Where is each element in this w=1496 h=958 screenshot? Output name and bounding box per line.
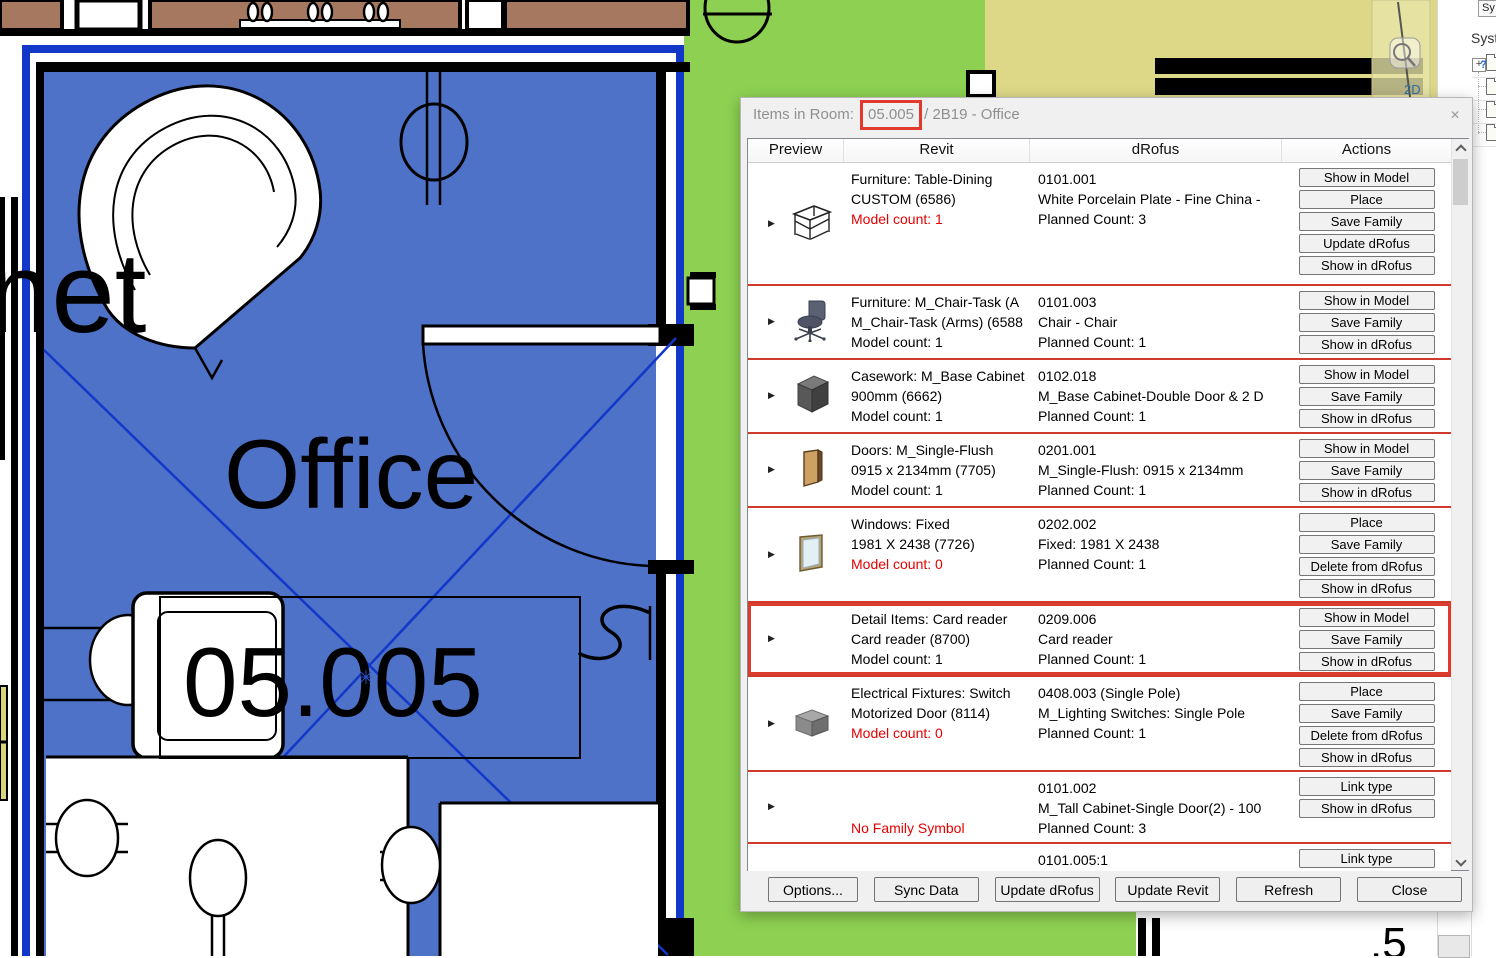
show-in-drofus-button[interactable]: Show in dRofus <box>1299 579 1435 598</box>
dialog-footer: Options... Sync Data Update dRofus Updat… <box>741 877 1472 902</box>
save-family-button[interactable]: Save Family <box>1299 387 1435 406</box>
panel-bottom-button[interactable] <box>1438 935 1470 958</box>
drofus-cell: 0101.003Chair - ChairPlanned Count: 1 <box>1030 286 1282 358</box>
revit-text: Detail Items: Card reader <box>851 609 1030 629</box>
revit-workspace: { "plan": { "room_name": "Office", "room… <box>0 0 1496 956</box>
show-in-model-button[interactable]: Show in Model <box>1299 365 1435 384</box>
sync-data-button[interactable]: Sync Data <box>874 877 979 902</box>
drofus-cell: 0201.001M_Single-Flush: 0915 x 2134mmPla… <box>1030 434 1282 506</box>
save-family-button[interactable]: Save Family <box>1299 212 1435 231</box>
tree-connector <box>1478 72 1479 134</box>
drofus-text: Planned Count: 1 <box>1038 554 1282 574</box>
chair-circle-1 <box>56 800 118 876</box>
door-preview-icon <box>788 446 836 494</box>
save-family-button[interactable]: Save Family <box>1299 313 1435 332</box>
options-button[interactable]: Options... <box>768 877 858 902</box>
link-type-button[interactable]: Link type <box>1299 849 1435 868</box>
room-office: net Office 05.005 ✳ <box>0 45 716 956</box>
tree-folder-icon[interactable] <box>1486 127 1496 141</box>
show-in-drofus-button[interactable]: Show in dRofus <box>1299 409 1435 428</box>
column-header-drofus[interactable]: dRofus <box>1030 139 1282 162</box>
room-number-highlight-box: 05.005 <box>860 100 922 130</box>
expand-arrow-icon[interactable]: ▶ <box>768 548 775 559</box>
casework-strip <box>0 0 690 36</box>
table-row[interactable]: ▶ 0101.005:1Armchair With armrestLink ty… <box>748 844 1451 871</box>
bottom-right-fragments: .5 <box>1138 918 1407 956</box>
show-in-drofus-button[interactable]: Show in dRofus <box>1299 799 1435 818</box>
show-in-model-button[interactable]: Show in Model <box>1299 291 1435 310</box>
table-row[interactable]: ▶ No Family Symbol0101.002M_Tall Cabinet… <box>748 772 1451 844</box>
revit-text: CUSTOM (6586) <box>851 189 1030 209</box>
actions-cell: PlaceSave FamilyDelete from dRofusShow i… <box>1282 508 1451 601</box>
show-in-model-button[interactable]: Show in Model <box>1299 608 1435 627</box>
table-row[interactable]: ▶Windows: Fixed1981 X 2438 (7726)Model c… <box>748 508 1451 603</box>
scroll-up-icon[interactable] <box>1452 139 1469 156</box>
scrollbar-thumb[interactable] <box>1453 159 1468 205</box>
expand-arrow-icon[interactable]: ▶ <box>768 217 775 228</box>
refresh-button[interactable]: Refresh <box>1236 877 1341 902</box>
drofus-text: White Porcelain Plate - Fine China - <box>1038 189 1282 209</box>
drofus-text: Planned Count: 1 <box>1038 723 1282 743</box>
unknown-badge: ? <box>1480 59 1487 71</box>
revit-alert-text: Model count: 1 <box>851 209 1030 229</box>
drofus-text: 0102.018 <box>1038 366 1282 386</box>
actions-cell: Link typeShow in dRofus <box>1282 772 1451 842</box>
tree-connector <box>1478 109 1486 110</box>
revit-cell: Doors: M_Single-Flush0915 x 2134mm (7705… <box>844 434 1030 506</box>
room-name-label: Office <box>224 419 478 529</box>
actions-cell: Link typeDelete from dRofus <box>1282 844 1451 871</box>
drofus-text: Planned Count: 1 <box>1038 649 1282 669</box>
system-browser-title: Syste <box>1471 30 1496 46</box>
revit-cell <box>844 844 1030 871</box>
table-row[interactable]: ▶Electrical Fixtures: SwitchMotorized Do… <box>748 677 1451 772</box>
switch-preview-icon <box>788 700 836 748</box>
drofus-text: M_Single-Flush: 0915 x 2134mm <box>1038 460 1282 480</box>
close-button[interactable]: Close <box>1357 877 1462 902</box>
drofus-cell: 0202.002Fixed: 1981 X 2438Planned Count:… <box>1030 508 1282 601</box>
expand-arrow-icon[interactable]: ▶ <box>768 717 775 728</box>
revit-text: Model count: 1 <box>851 480 1030 500</box>
drofus-cell: 0101.005:1Armchair With armrest <box>1030 844 1282 871</box>
revit-alert-text: Model count: 0 <box>851 554 1030 574</box>
system-browser-collapsed-button[interactable]: Sy <box>1478 0 1496 17</box>
drofus-text: 0408.003 (Single Pole) <box>1038 683 1282 703</box>
wall-fixture <box>688 272 716 310</box>
adjacent-room-label: net <box>0 230 146 357</box>
delete-from-drofus-button[interactable]: Delete from dRofus <box>1299 557 1435 576</box>
dialog-title: Items in Room: 05.005 / 2B19 - Office <box>741 98 1472 134</box>
revit-text <box>851 870 1030 871</box>
table-body: ▶Furniture: Table-DiningCUSTOM (6586)Mod… <box>748 163 1451 871</box>
revit-text: Model count: 1 <box>851 332 1030 352</box>
tree-connector <box>1478 86 1486 87</box>
column-header-preview[interactable]: Preview <box>748 139 844 162</box>
show-in-drofus-button[interactable]: Show in dRofus <box>1299 483 1435 502</box>
revit-cell: Furniture: M_Chair-Task (AM_Chair-Task (… <box>844 286 1030 358</box>
drofus-text: 0101.002 <box>1038 778 1282 798</box>
column-header-actions[interactable]: Actions <box>1282 139 1451 162</box>
drofus-text: 0209.006 <box>1038 609 1282 629</box>
drofus-text: 0202.002 <box>1038 514 1282 534</box>
show-in-model-button[interactable]: Show in Model <box>1299 168 1435 187</box>
drofus-text: Card reader <box>1038 629 1282 649</box>
place-button[interactable]: Place <box>1299 190 1435 209</box>
partial-plan-number: .5 <box>1370 919 1407 956</box>
delete-from-drofus-button[interactable]: Delete from dRofus <box>1299 726 1435 745</box>
update-drofus-button[interactable]: Update dRofus <box>1299 234 1435 253</box>
drofus-cell: 0101.001White Porcelain Plate - Fine Chi… <box>1030 163 1282 284</box>
actions-cell: Show in ModelSave FamilyShow in dRofus <box>1282 360 1451 432</box>
drofus-text: 0101.003 <box>1038 292 1282 312</box>
place-button[interactable]: Place <box>1299 682 1435 701</box>
revit-cell: No Family Symbol <box>844 772 1030 842</box>
revit-text: 0915 x 2134mm (7705) <box>851 460 1030 480</box>
expand-arrow-icon[interactable]: ▶ <box>768 464 775 475</box>
tree-root-folder-icon[interactable]: ? <box>1486 57 1496 71</box>
tree-folder-icon[interactable] <box>1486 104 1496 118</box>
drofus-text: Fixed: 1981 X 2438 <box>1038 534 1282 554</box>
revit-text: Model count: 1 <box>851 406 1030 426</box>
save-family-button[interactable]: Save Family <box>1299 704 1435 723</box>
revit-cell: Windows: Fixed1981 X 2438 (7726)Model co… <box>844 508 1030 601</box>
actions-cell: Show in ModelSave FamilyShow in dRofus <box>1282 434 1451 506</box>
save-family-button[interactable]: Save Family <box>1299 535 1435 554</box>
tree-separator <box>1472 146 1496 147</box>
save-family-button[interactable]: Save Family <box>1299 630 1435 649</box>
drofus-cell: 0101.002M_Tall Cabinet-Single Door(2) - … <box>1030 772 1282 842</box>
place-button[interactable]: Place <box>1299 513 1435 532</box>
expand-arrow-icon[interactable]: ▶ <box>768 633 775 644</box>
dialog-title-prefix: Items in Room: <box>753 106 854 123</box>
drofus-cell: 0209.006Card readerPlanned Count: 1 <box>1030 603 1282 675</box>
cabinet-preview-icon <box>788 372 836 420</box>
drofus-text: Planned Count: 1 <box>1038 406 1282 426</box>
drofus-text: 0101.005:1 <box>1038 850 1282 870</box>
drofus-text: 0201.001 <box>1038 440 1282 460</box>
drofus-text: Planned Count: 3 <box>1038 818 1282 838</box>
drofus-text: M_Base Cabinet-Double Door & 2 D <box>1038 386 1282 406</box>
revit-text: Card reader (8700) <box>851 629 1030 649</box>
revit-text <box>851 798 1030 818</box>
drofus-text: M_Tall Cabinet-Single Door(2) - 100 <box>1038 798 1282 818</box>
drofus-text: Planned Count: 1 <box>1038 332 1282 352</box>
scroll-down-icon[interactable] <box>1452 853 1469 870</box>
door-panel <box>423 326 660 344</box>
show-in-drofus-button[interactable]: Show in dRofus <box>1299 335 1435 354</box>
drofus-text: Planned Count: 1 <box>1038 480 1282 500</box>
actions-cell: Show in ModelSave FamilyShow in dRofus <box>1282 286 1451 358</box>
tree-folder-icon[interactable] <box>1486 81 1496 95</box>
room-selection-outline <box>22 45 684 53</box>
revit-text <box>851 850 1030 870</box>
revit-text: 900mm (6662) <box>851 386 1030 406</box>
chair-circle-2 <box>190 840 246 916</box>
revit-text: Casework: M_Base Cabinet <box>851 366 1030 386</box>
chair-preview-icon <box>788 298 836 346</box>
drofus-cell: 0408.003 (Single Pole)M_Lighting Switche… <box>1030 677 1282 770</box>
window-preview-icon <box>788 531 836 579</box>
show-in-model-button[interactable]: Show in Model <box>1299 439 1435 458</box>
expand-arrow-icon[interactable]: ▶ <box>768 801 775 812</box>
update-drofus-button[interactable]: Update dRofus <box>995 877 1100 902</box>
drofus-text: 0101.001 <box>1038 169 1282 189</box>
drofus-text: Planned Count: 3 <box>1038 209 1282 229</box>
table-row[interactable]: ▶Doors: M_Single-Flush0915 x 2134mm (770… <box>748 434 1451 508</box>
save-family-button[interactable]: Save Family <box>1299 461 1435 480</box>
revit-cell: Furniture: Table-DiningCUSTOM (6586)Mode… <box>844 163 1030 284</box>
revit-text: Furniture: M_Chair-Task (A <box>851 292 1030 312</box>
actions-cell: Show in ModelPlaceSave FamilyUpdate dRof… <box>1282 163 1451 284</box>
chair-circle-3 <box>382 827 440 903</box>
revit-text: Model count: 1 <box>851 649 1030 669</box>
actions-cell: PlaceSave FamilyDelete from dRofusShow i… <box>1282 677 1451 770</box>
table-row[interactable]: ▶Furniture: M_Chair-Task (AM_Chair-Task … <box>748 286 1451 360</box>
tree-connector <box>1478 132 1486 133</box>
selection-asterisk-icon: ✳ <box>358 668 374 689</box>
column-header-revit[interactable]: Revit <box>844 139 1030 162</box>
drofus-text: Armchair With armrest <box>1038 870 1282 871</box>
drofus-text: M_Lighting Switches: Single Pole <box>1038 703 1282 723</box>
show-in-drofus-button[interactable]: Show in dRofus <box>1299 256 1435 275</box>
table-row[interactable]: ▶Furniture: Table-DiningCUSTOM (6586)Mod… <box>748 163 1451 286</box>
revit-text: Windows: Fixed <box>851 514 1030 534</box>
link-type-button[interactable]: Link type <box>1299 777 1435 796</box>
revit-alert-text: No Family Symbol <box>851 818 1030 838</box>
drofus-cell: 0102.018M_Base Cabinet-Double Door & 2 D… <box>1030 360 1282 432</box>
show-in-drofus-button[interactable]: Show in dRofus <box>1299 748 1435 767</box>
revit-text: M_Chair-Task (Arms) (6588 <box>851 312 1030 332</box>
items-table: Preview Revit dRofus Actions ▶Furniture:… <box>747 138 1469 871</box>
table-header: Preview Revit dRofus Actions <box>748 139 1451 163</box>
revit-text: Doors: M_Single-Flush <box>851 440 1030 460</box>
revit-cell: Detail Items: Card readerCard reader (87… <box>844 603 1030 675</box>
revit-text: Furniture: Table-Dining <box>851 169 1030 189</box>
svg-text:2D: 2D <box>1404 82 1421 97</box>
show-in-drofus-button[interactable]: Show in dRofus <box>1299 652 1435 671</box>
dialog-title-suffix: / 2B19 - Office <box>924 106 1020 123</box>
room-number-label: 05.005 <box>183 627 483 737</box>
revit-cell: Electrical Fixtures: SwitchMotorized Doo… <box>844 677 1030 770</box>
update-revit-button[interactable]: Update Revit <box>1115 877 1220 902</box>
table-scrollbar[interactable] <box>1451 139 1469 870</box>
revit-cell: Casework: M_Base Cabinet900mm (6662)Mode… <box>844 360 1030 432</box>
revit-alert-text: Model count: 0 <box>851 723 1030 743</box>
actions-cell: Show in ModelSave FamilyShow in dRofus <box>1282 603 1451 675</box>
items-in-room-dialog: Items in Room: 05.005 / 2B19 - Office ✕ … <box>740 97 1473 912</box>
revit-text: Electrical Fixtures: Switch <box>851 683 1030 703</box>
table-row-highlighted[interactable]: ▶Detail Items: Card readerCard reader (8… <box>748 603 1451 677</box>
revit-text: Motorized Door (8114) <box>851 703 1030 723</box>
table-preview-icon <box>788 200 836 248</box>
table-row[interactable]: ▶Casework: M_Base Cabinet900mm (6662)Mod… <box>748 360 1451 434</box>
close-icon[interactable]: ✕ <box>1445 105 1465 125</box>
drofus-text: Chair - Chair <box>1038 312 1282 332</box>
expand-arrow-icon[interactable]: ▶ <box>768 316 775 327</box>
revit-text: 1981 X 2438 (7726) <box>851 534 1030 554</box>
revit-text <box>851 778 1030 798</box>
expand-arrow-icon[interactable]: ▶ <box>768 390 775 401</box>
